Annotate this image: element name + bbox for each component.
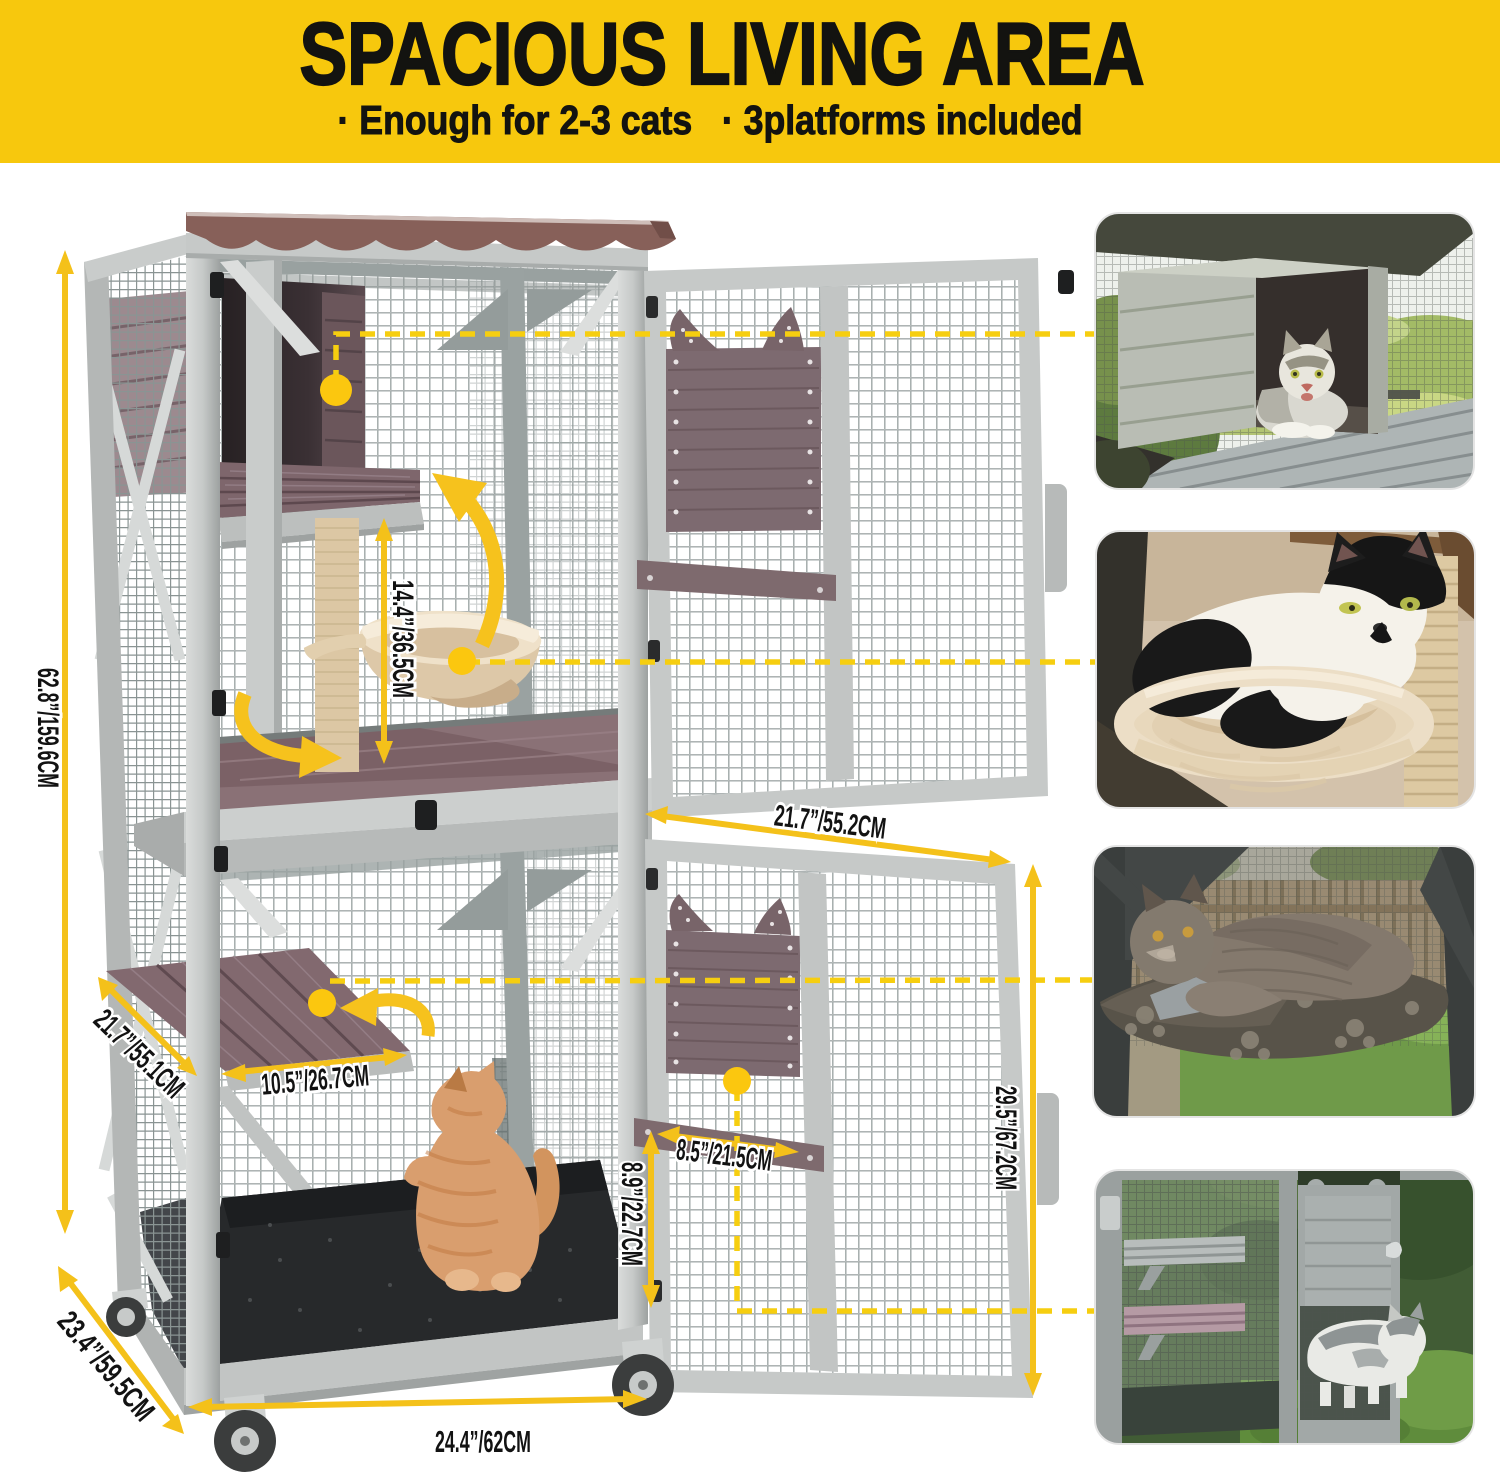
svg-text:62.8”/159.6CM: 62.8”/159.6CM (31, 668, 64, 788)
svg-text:21.7”/55.2CM: 21.7”/55.2CM (773, 799, 888, 845)
svg-text:· Enough for 2-3 cats · 3pla: · Enough for 2-3 cats · 3platforms inclu… (338, 97, 1083, 143)
svg-text:24.4”/62CM: 24.4”/62CM (435, 1424, 531, 1459)
svg-text:SPACIOUS LIVING AREA: SPACIOUS LIVING AREA (300, 4, 1145, 103)
svg-text:14.4”/36.5CM: 14.4”/36.5CM (386, 580, 419, 698)
svg-text:8.9”/22.7CM: 8.9”/22.7CM (615, 1162, 648, 1266)
svg-text:29.5”/67.2CM: 29.5”/67.2CM (989, 1086, 1022, 1190)
